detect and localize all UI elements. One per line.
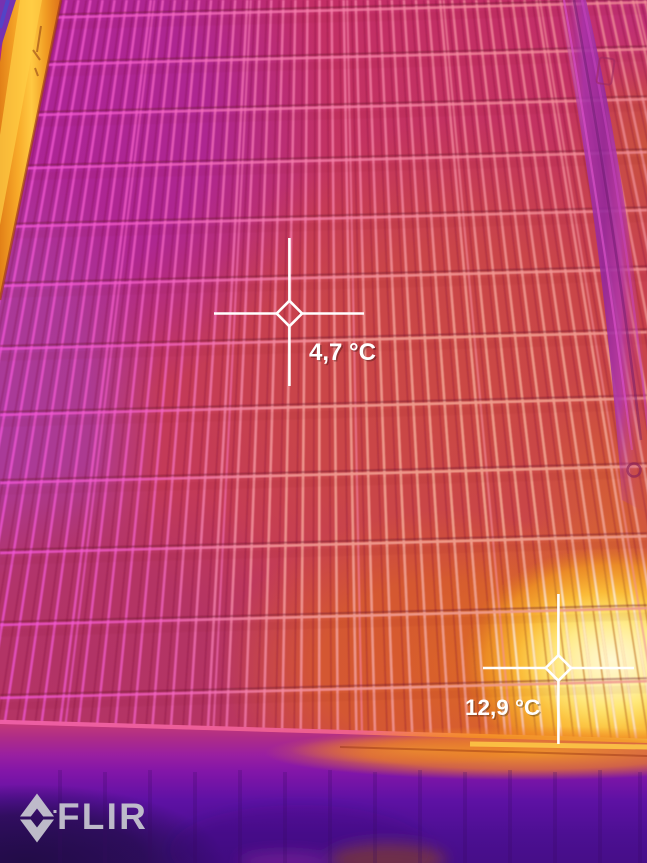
svg-text:12,9 °C: 12,9 °C: [465, 695, 540, 720]
svg-text:4,7 °C: 4,7 °C: [309, 339, 376, 366]
svg-text:FLIR: FLIR: [57, 796, 148, 837]
